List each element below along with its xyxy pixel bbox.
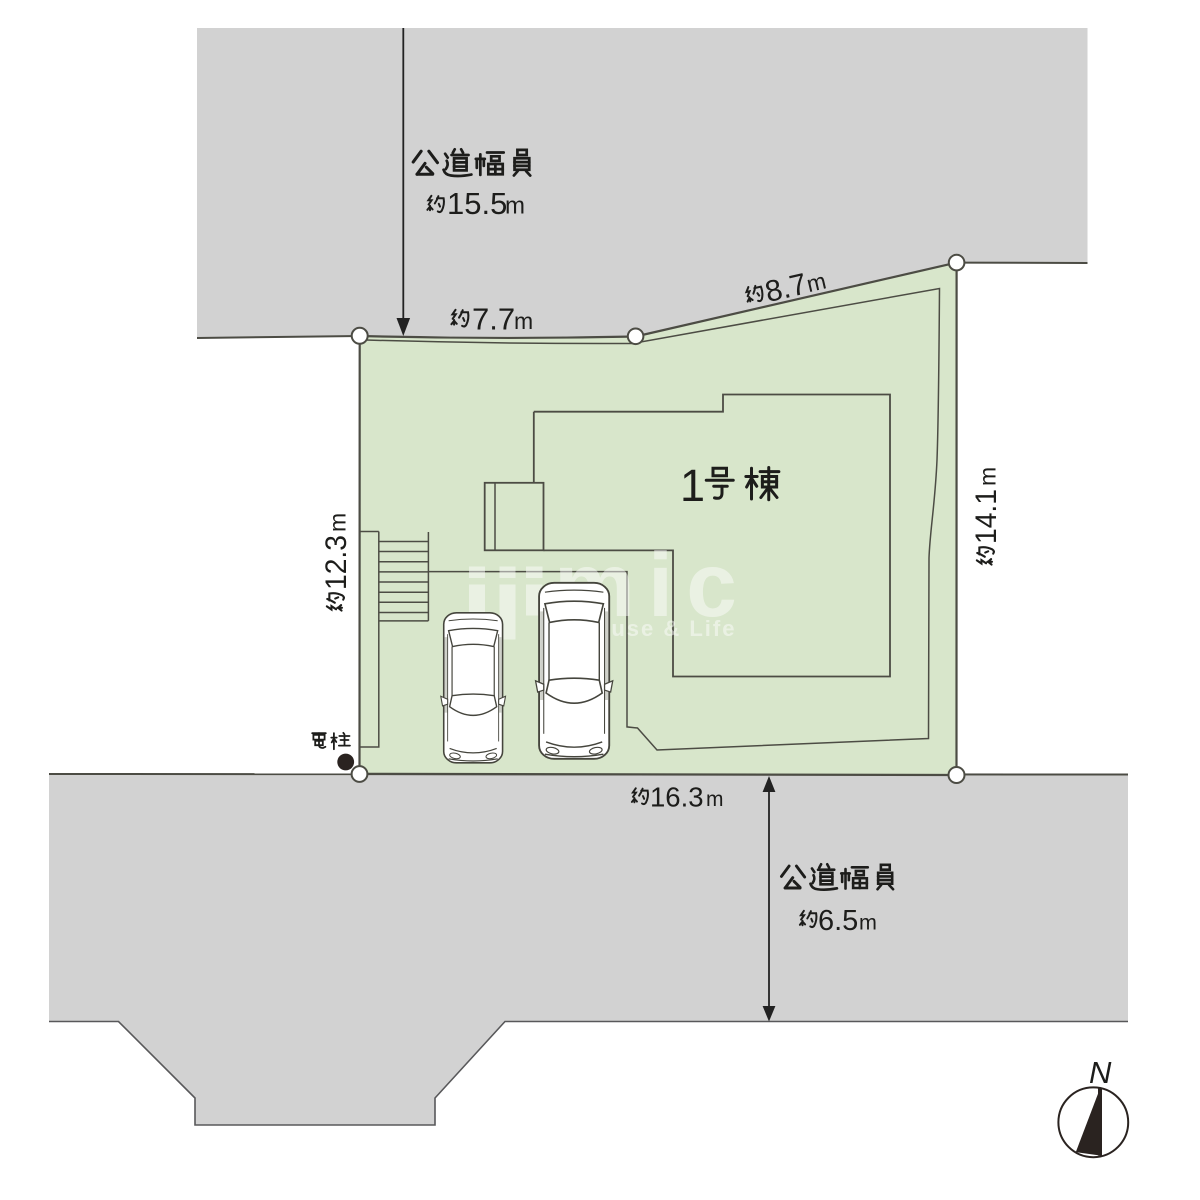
svg-text:7.7: 7.7 xyxy=(472,302,515,337)
svg-text:m: m xyxy=(514,308,533,334)
svg-text:m: m xyxy=(975,467,1001,486)
svg-text:m: m xyxy=(859,911,877,935)
svg-text:12.3: 12.3 xyxy=(320,535,353,590)
svg-text:6.5: 6.5 xyxy=(818,905,858,937)
svg-text:15.5: 15.5 xyxy=(447,186,507,221)
svg-text:16.3: 16.3 xyxy=(650,782,704,813)
svg-text:m: m xyxy=(505,193,525,220)
svg-text:1: 1 xyxy=(680,460,705,511)
svg-text:N: N xyxy=(1089,1055,1112,1090)
svg-text:m: m xyxy=(706,788,724,811)
svg-text:m: m xyxy=(325,513,351,532)
svg-text:14.1: 14.1 xyxy=(970,489,1003,544)
